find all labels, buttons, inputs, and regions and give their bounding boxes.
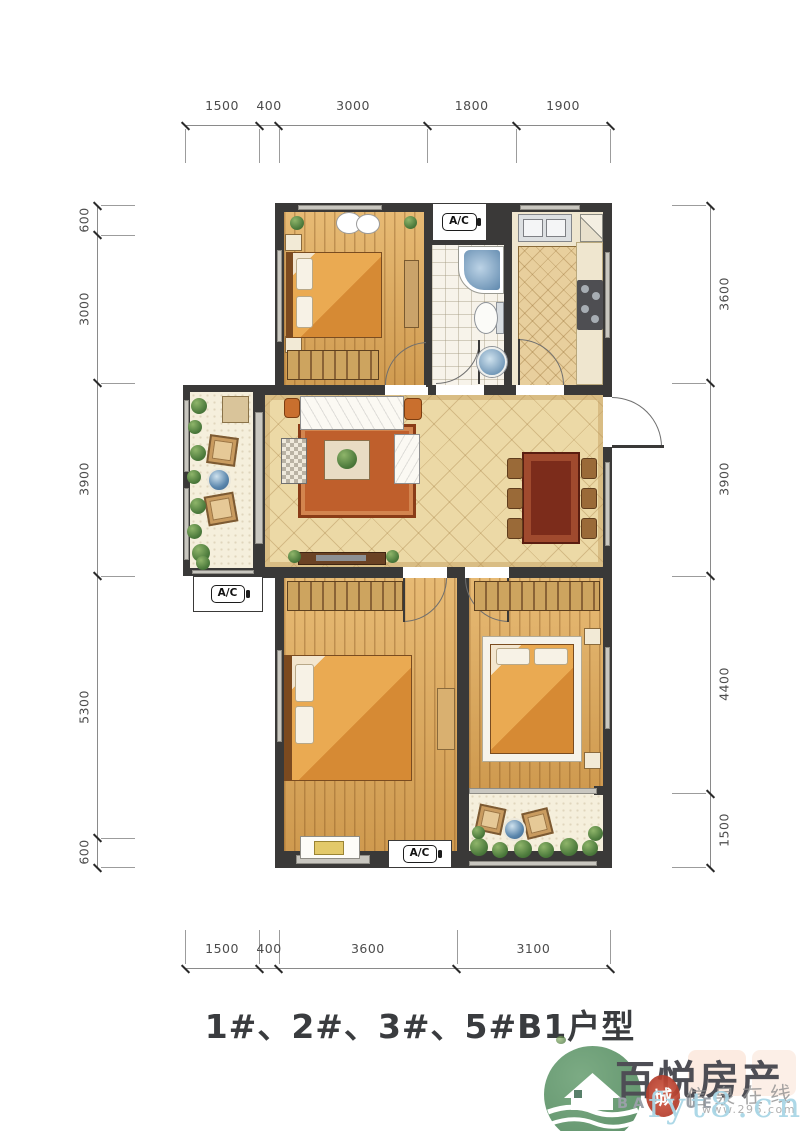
dim-label: 3000 [77,292,92,326]
dim-label: 3900 [717,462,732,496]
dim-extension [101,838,135,839]
dim-extension [672,576,706,577]
dim-extension [259,129,260,163]
dim-extension [457,930,458,964]
dim-extension [185,930,186,964]
dim-label: 4400 [717,667,732,701]
dim-extension [516,129,517,163]
unit-type-title: 1#、2#、3#、5#B1户型 [140,1000,700,1048]
dim-label: 3100 [516,941,550,956]
dim-extension [427,129,428,163]
dim-extension [672,205,706,206]
dim-extension [279,129,280,163]
site-watermark: fyt8.cn [648,1086,800,1126]
dim-extension [185,129,186,163]
dim-extension [672,867,706,868]
dim-label: 1500 [205,941,239,956]
dim-extension [672,793,706,794]
dim-label: 3900 [77,462,92,496]
dim-line [185,125,610,126]
dim-extension [672,383,706,384]
dim-label: 1500 [205,98,239,113]
floor-plan-page: A/C A/C A/C [0,0,800,1131]
dim-label: 600 [77,207,92,232]
dim-label: 5300 [77,690,92,724]
dim-label: 3600 [717,277,732,311]
dim-line [710,205,711,867]
logo-leaf-decor [556,1036,566,1044]
dim-extension [101,576,135,577]
dim-extension [101,235,135,236]
dim-label: 1900 [546,98,580,113]
dim-line [185,968,610,969]
dim-extension [610,930,611,964]
dim-extension [610,129,611,163]
dim-extension [101,383,135,384]
dimension-annotations: 1500400300018001900150040036003100600300… [0,0,800,1131]
dim-extension [101,205,135,206]
dim-label: 400 [256,98,281,113]
dim-label: 1800 [455,98,489,113]
dim-label: 600 [77,840,92,865]
dim-label: 400 [256,941,281,956]
dim-label: 3600 [351,941,385,956]
dim-label: 3000 [336,98,370,113]
dim-extension [101,867,135,868]
dim-line [97,205,98,867]
dim-label: 1500 [717,813,732,847]
